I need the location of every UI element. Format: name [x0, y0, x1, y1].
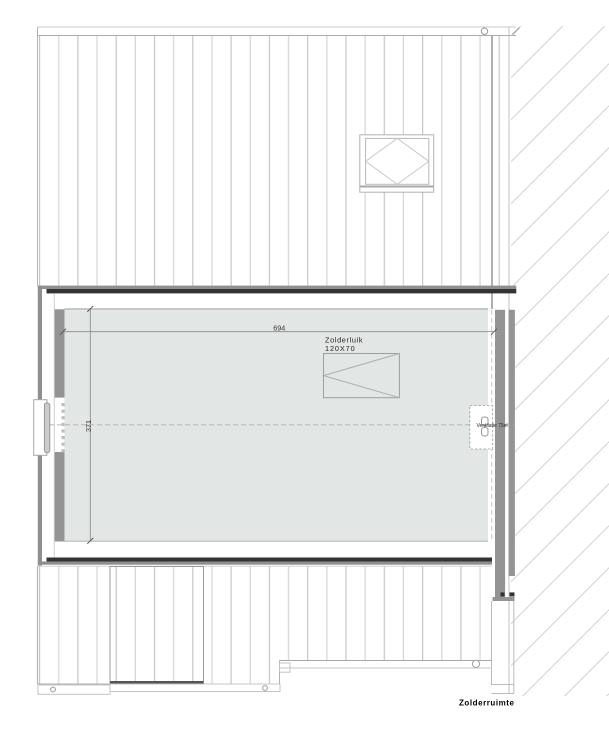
svg-text:Ventilatie 75el: Ventilatie 75el	[477, 423, 508, 429]
svg-text:Zolderluik: Zolderluik	[325, 335, 363, 344]
svg-text:Zolderruimte: Zolderruimte	[459, 698, 515, 707]
svg-text:120X70: 120X70	[325, 344, 356, 353]
svg-text:694: 694	[273, 324, 285, 333]
svg-text:371: 371	[84, 420, 93, 432]
